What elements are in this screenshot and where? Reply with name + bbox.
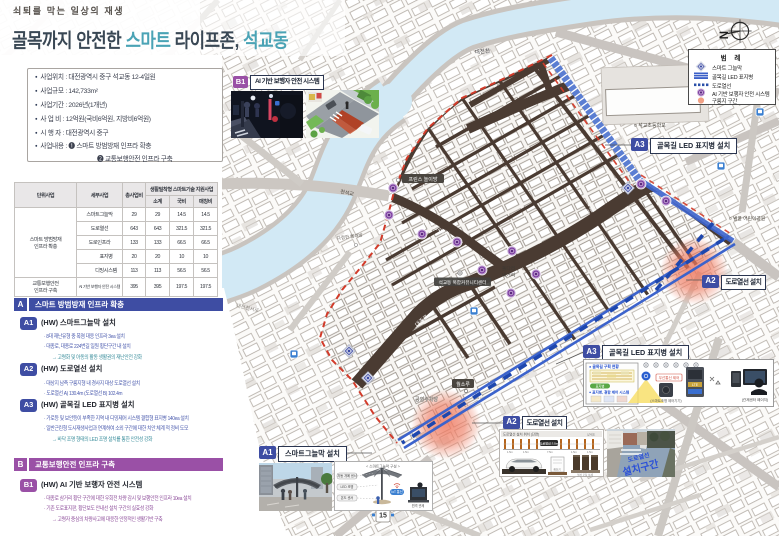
svg-text:1.5m: 1.5m bbox=[587, 450, 593, 454]
svg-text:온도 센서: 온도 센서 bbox=[341, 495, 354, 500]
svg-text:7.5m: 7.5m bbox=[547, 450, 553, 454]
svg-text:공영주차장: 공영주차장 bbox=[415, 396, 438, 403]
svg-text:도로열선 7.5m: 도로열선 7.5m bbox=[540, 441, 559, 446]
svg-text:상세도: 상세도 bbox=[587, 432, 596, 437]
svg-text:월소루: 월소루 bbox=[456, 381, 470, 388]
svg-text:무선통신 제어: 무선통신 제어 bbox=[659, 375, 680, 380]
svg-text:석교동 복합커뮤니티센터: 석교동 복합커뮤니티센터 bbox=[439, 279, 487, 286]
svg-text:1.5m: 1.5m bbox=[507, 450, 513, 454]
svg-text:IoT 통신: IoT 통신 bbox=[391, 489, 402, 494]
svg-text:N: N bbox=[717, 31, 729, 39]
svg-text:● 골목길 구획 현황: ● 골목길 구획 현황 bbox=[589, 364, 619, 369]
svg-text:자동 개폐 센서: 자동 개폐 센서 bbox=[337, 473, 356, 478]
svg-text:제어기: 제어기 bbox=[553, 468, 561, 472]
svg-text:표지병: 표지병 bbox=[596, 383, 605, 388]
svg-text:돌다리: 돌다리 bbox=[502, 265, 515, 272]
svg-text:네거리: 네거리 bbox=[502, 272, 515, 279]
svg-text:¤ 석교초등학교: ¤ 석교초등학교 bbox=[634, 122, 666, 129]
svg-text:15: 15 bbox=[379, 513, 387, 520]
svg-text:(관제센터 페이지): (관제센터 페이지) bbox=[742, 397, 769, 402]
svg-text:열선 모듈 상세: 열선 모듈 상세 bbox=[577, 473, 593, 477]
svg-text:LTE: LTE bbox=[692, 383, 699, 387]
svg-text:도로열선 설치 위치 (단면): 도로열선 설치 위치 (단면) bbox=[503, 432, 539, 437]
svg-text:(스마트조명 제어기기): (스마트조명 제어기기) bbox=[650, 398, 681, 403]
svg-text:1.5m: 1.5m bbox=[523, 450, 529, 454]
svg-text:< 스마트그늘막 구성 >: < 스마트그늘막 구성 > bbox=[366, 464, 400, 469]
svg-text:원격 관제: 원격 관제 bbox=[412, 503, 425, 508]
svg-text:프린스 놀이방: 프린스 놀이방 bbox=[409, 176, 438, 183]
svg-text:1.5m: 1.5m bbox=[571, 450, 577, 454]
svg-text:● 표지병, 결함 제어 시스템: ● 표지병, 결함 제어 시스템 bbox=[589, 390, 629, 395]
svg-text:¤ 벌꿀 어린이공원: ¤ 벌꿀 어린이공원 bbox=[729, 215, 765, 222]
svg-text:LED 조명: LED 조명 bbox=[341, 484, 354, 489]
